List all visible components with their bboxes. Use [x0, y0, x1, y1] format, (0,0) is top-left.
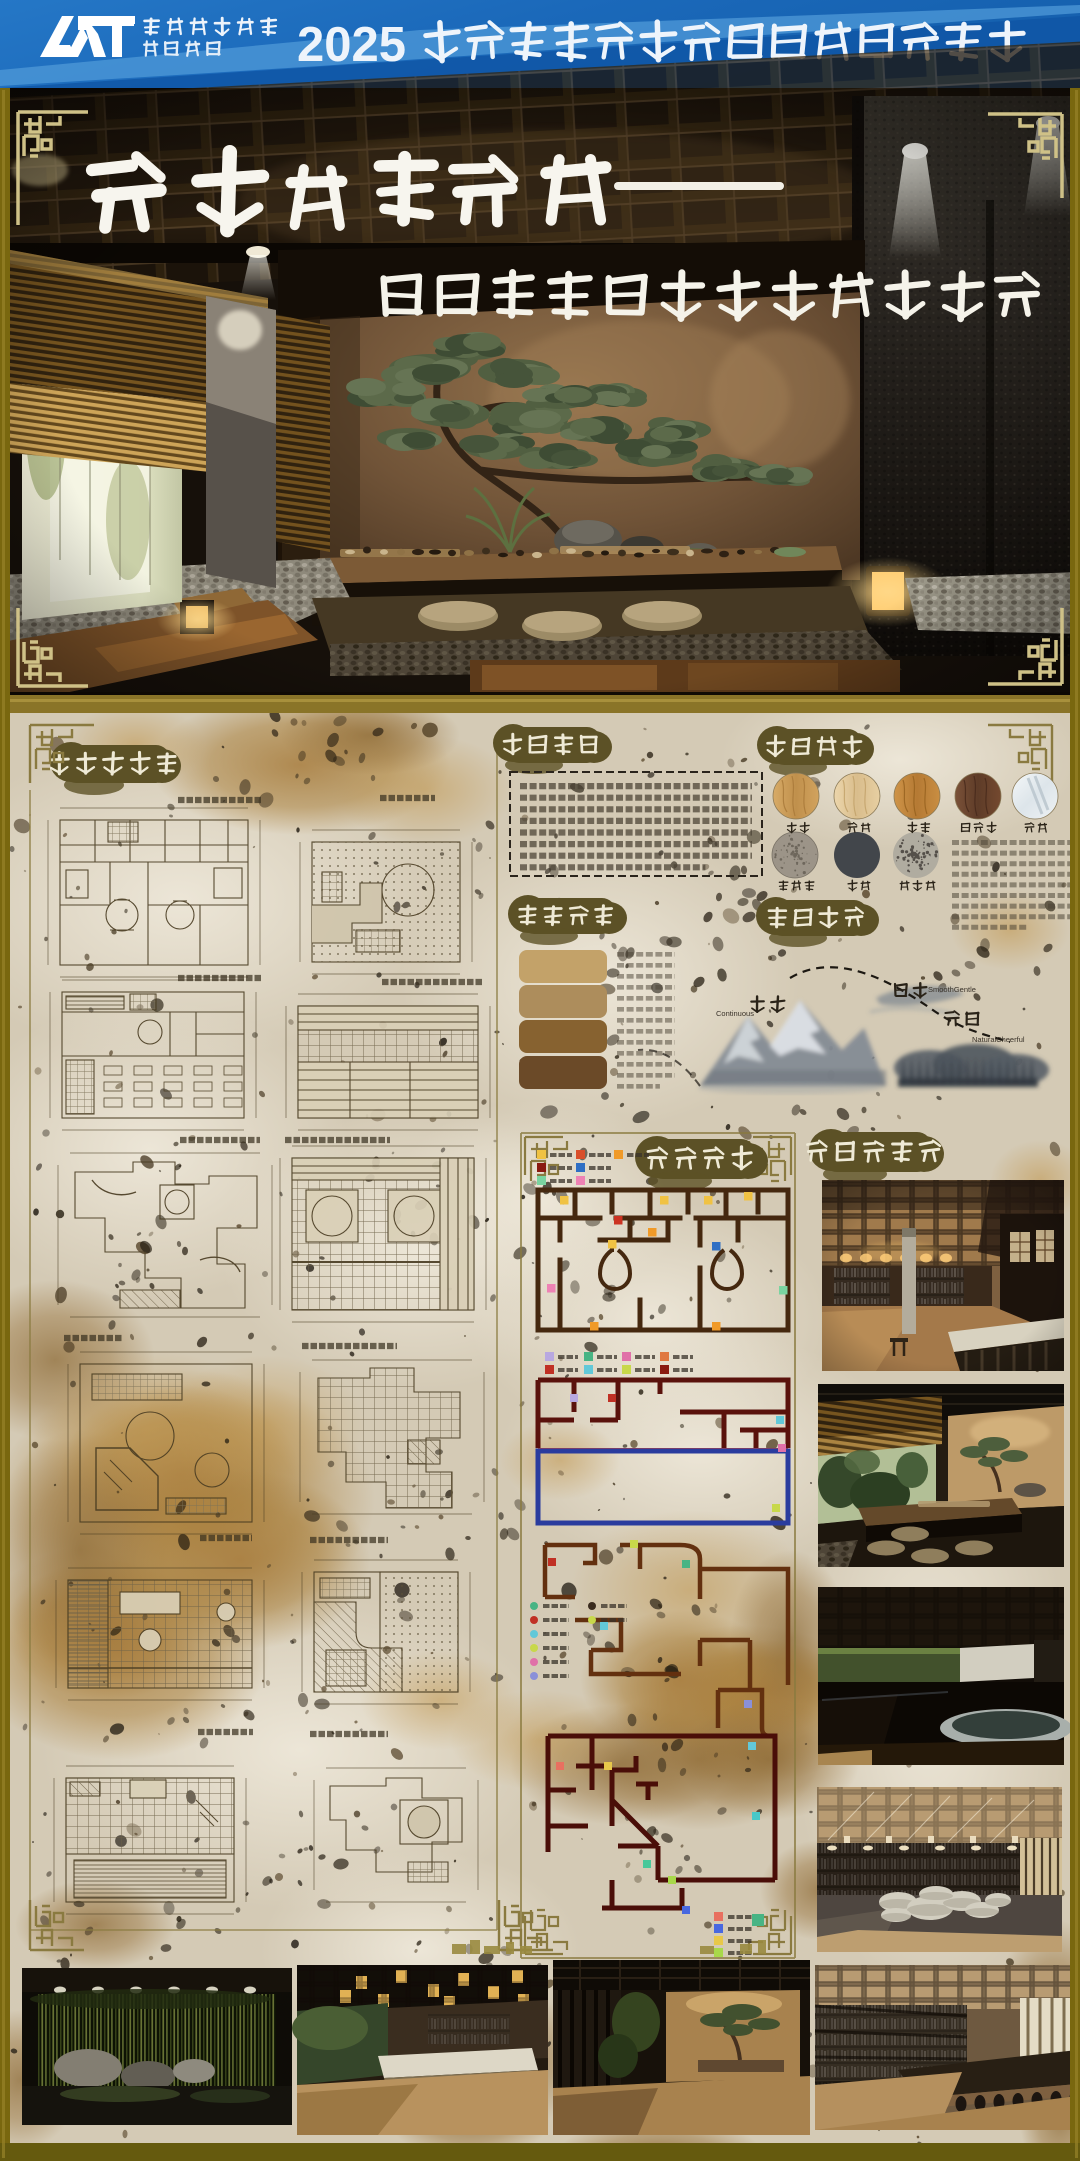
svg-text:SmoothGentle: SmoothGentle: [928, 985, 976, 994]
svg-text:2025: 2025: [297, 18, 406, 72]
svg-text:Continuous: Continuous: [716, 1009, 754, 1018]
svg-text:NaturalCheerful: NaturalCheerful: [972, 1035, 1025, 1044]
